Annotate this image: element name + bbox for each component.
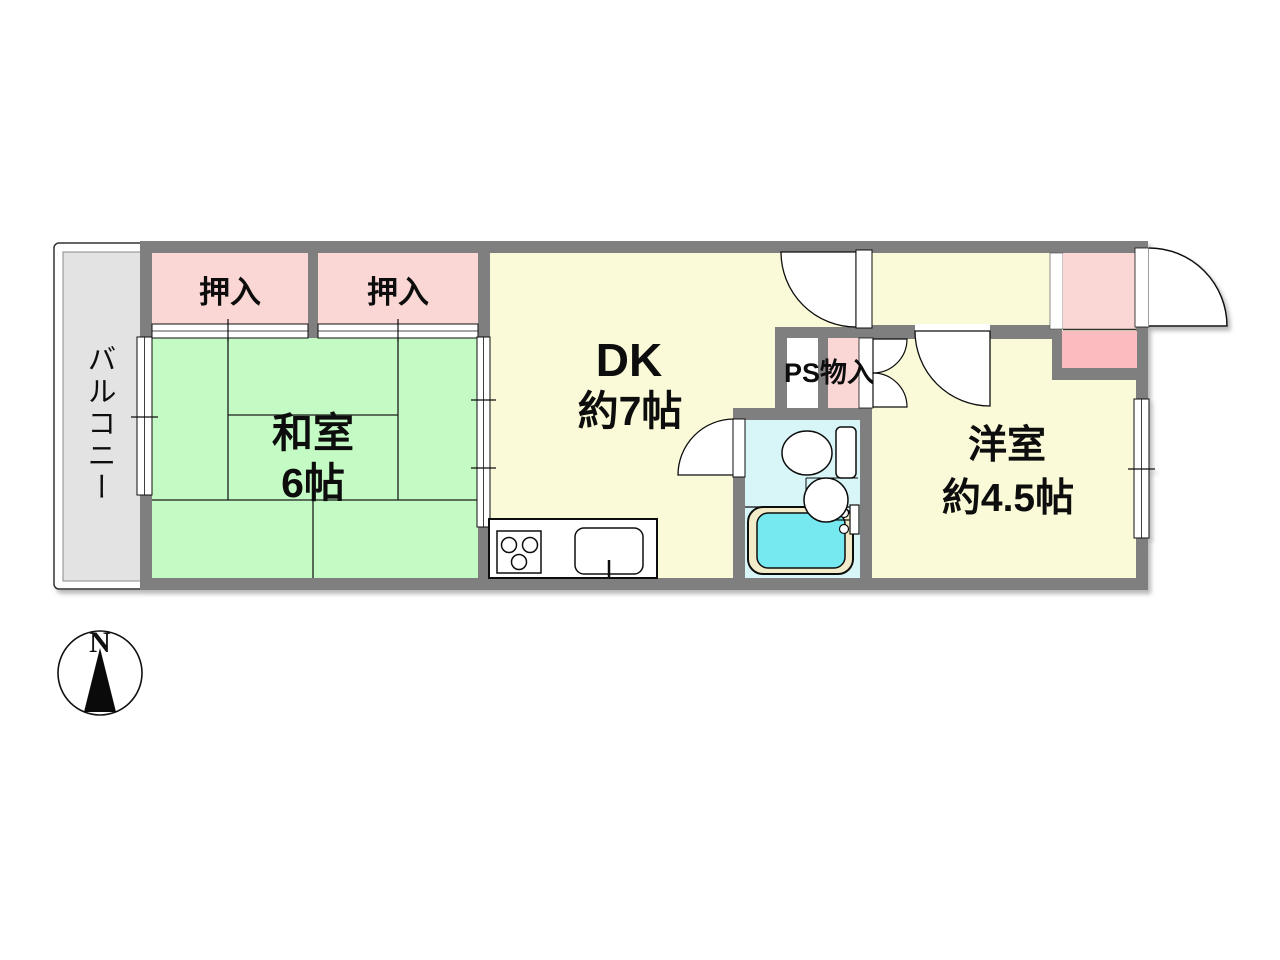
- entry-closet-opening: [1050, 253, 1063, 329]
- dk-name-label: DK: [596, 334, 662, 386]
- bathroom-top-wall: [733, 408, 872, 420]
- dk-size-label: 約7帖: [578, 388, 683, 434]
- entry-closet-bottom-wall: [1052, 368, 1140, 380]
- bathroom-door-leaf: [733, 419, 745, 477]
- faucet-knob: [840, 525, 849, 534]
- washitsu-fill: [152, 338, 478, 578]
- ps-closet-label: PS物入: [784, 358, 874, 388]
- yoshitsu-size-label: 約4.5帖: [942, 477, 1074, 520]
- stove-burner: [502, 538, 517, 553]
- toilet-tank: [836, 427, 856, 478]
- closet-left-label: 押入: [199, 275, 261, 310]
- stove-burner: [512, 555, 527, 570]
- toilet-bowl: [782, 431, 832, 475]
- stove-burner: [523, 538, 538, 553]
- closet-right-label: 押入: [367, 275, 429, 310]
- shower-mixer: [850, 505, 859, 534]
- floor-plan-page: バルコニー 押入 押入 和室 6帖 DK 約7帖 PS物入 洋室 約4.5帖 N: [0, 0, 1280, 960]
- balcony-label: バルコニー: [83, 344, 115, 504]
- floor-plan: バルコニー 押入 押入 和室 6帖 DK 約7帖 PS物入 洋室 約4.5帖 N: [0, 0, 1280, 960]
- entrance-doorway-gap: [1135, 248, 1149, 327]
- compass-north-label: N: [89, 626, 111, 659]
- entry-closet-lower: [1062, 331, 1137, 368]
- building-outline: バルコニー 押入 押入 和室 6帖 DK 約7帖 PS物入 洋室 約4.5帖: [54, 241, 1227, 590]
- washbasin: [804, 478, 848, 522]
- washitsu-name-label: 和室: [272, 410, 354, 456]
- entry-closet-upper: [1063, 253, 1136, 329]
- kitchen-counter: [489, 519, 657, 578]
- washitsu-size-label: 6帖: [281, 460, 345, 506]
- dk-hall-door-leaf: [856, 250, 872, 328]
- yoshitsu-name-label: 洋室: [968, 424, 1046, 467]
